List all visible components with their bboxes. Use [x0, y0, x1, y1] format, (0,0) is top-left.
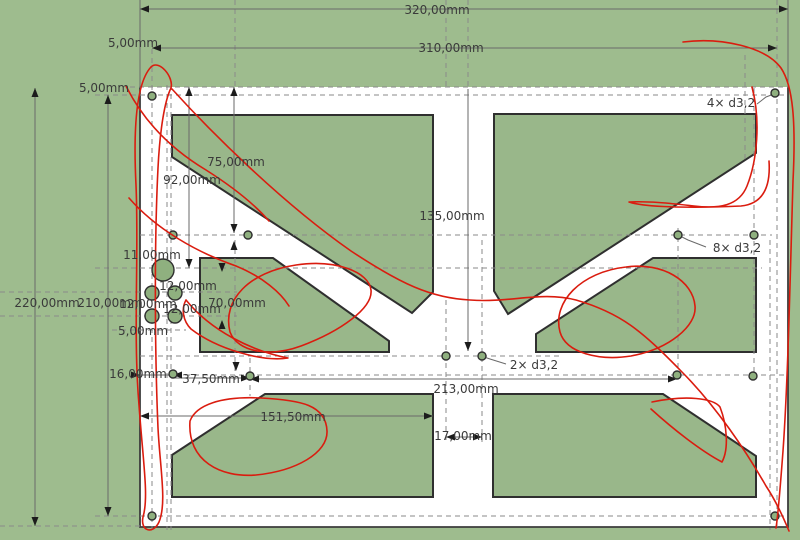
hole-d32_center[interactable]	[478, 352, 486, 360]
drawing-svg: 320,00mm310,00mm5,00mm5,00mm75,00mm92,00…	[0, 0, 800, 540]
dim-210[interactable]: 210,00mm	[77, 296, 142, 310]
dim-310[interactable]: 310,00mm	[418, 41, 483, 55]
hole-d32_mid[interactable]	[674, 231, 682, 239]
note-4x-d32[interactable]: 4× d3,2	[707, 96, 755, 110]
dim-135[interactable]: 135,00mm	[419, 209, 484, 223]
dim-37-5[interactable]: 37,50mm	[182, 372, 240, 386]
hole-d32_mid[interactable]	[246, 372, 254, 380]
note-2x-d32[interactable]: 2× d3,2	[510, 358, 558, 372]
hole-d32_mid[interactable]	[169, 370, 177, 378]
dim-5-left[interactable]: 5,00mm	[79, 81, 129, 95]
cad-canvas[interactable]: 320,00mm310,00mm5,00mm5,00mm75,00mm92,00…	[0, 0, 800, 540]
dim-320[interactable]: 320,00mm	[404, 3, 469, 17]
hole-d32_mid[interactable]	[673, 371, 681, 379]
dim-5-top[interactable]: 5,00mm	[108, 36, 158, 50]
dim-92[interactable]: 92,00mm	[163, 173, 221, 187]
dim-70[interactable]: 70,00mm	[208, 296, 266, 310]
hole-d32_center[interactable]	[442, 352, 450, 360]
dim-5-cluster[interactable]: 5,00mm	[118, 324, 168, 338]
hole-cluster_medium[interactable]	[145, 309, 159, 323]
dim-75[interactable]: 75,00mm	[207, 155, 265, 169]
hole-d32_mid[interactable]	[750, 231, 758, 239]
note-8x-d32[interactable]: 8× d3,2	[713, 241, 761, 255]
hole-d32_mid[interactable]	[244, 231, 252, 239]
hole-d32_corner[interactable]	[148, 512, 156, 520]
hole-d32_mid[interactable]	[749, 372, 757, 380]
hole-d32_corner[interactable]	[771, 89, 779, 97]
dim-151-5[interactable]: 151,50mm	[260, 410, 325, 424]
dim-11[interactable]: 11,00mm	[123, 248, 181, 262]
hole-d32_corner[interactable]	[148, 92, 156, 100]
dim-213[interactable]: 213,00mm	[433, 382, 498, 396]
dim-220[interactable]: 220,00mm	[14, 296, 79, 310]
dim-12-a[interactable]: 12,00mm	[159, 279, 217, 293]
dim-17[interactable]: 17,00mm	[434, 429, 492, 443]
dim-16[interactable]: 16,00mm	[109, 367, 167, 381]
